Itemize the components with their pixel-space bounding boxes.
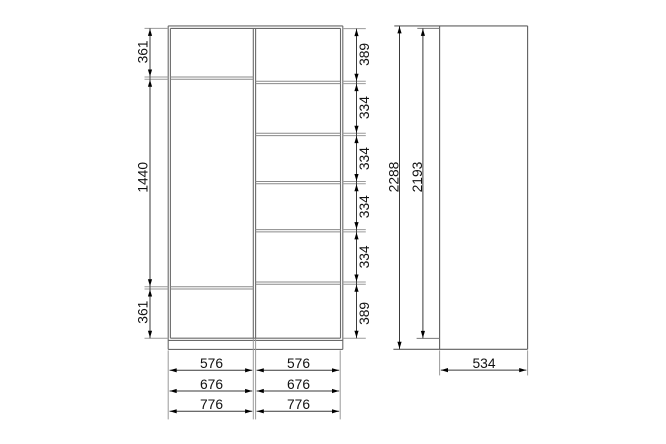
svg-text:389: 389	[357, 43, 372, 66]
svg-text:576: 576	[287, 356, 310, 371]
svg-text:334: 334	[357, 147, 372, 170]
svg-text:676: 676	[287, 377, 310, 392]
svg-text:1440: 1440	[136, 162, 151, 193]
svg-text:389: 389	[357, 302, 372, 325]
svg-text:334: 334	[357, 245, 372, 268]
svg-text:334: 334	[357, 195, 372, 218]
svg-text:776: 776	[200, 397, 223, 412]
svg-text:2288: 2288	[387, 161, 402, 192]
svg-text:334: 334	[357, 96, 372, 119]
svg-text:361: 361	[136, 40, 151, 63]
svg-text:576: 576	[200, 356, 223, 371]
svg-text:2193: 2193	[410, 161, 425, 192]
svg-text:776: 776	[287, 397, 310, 412]
svg-text:361: 361	[136, 301, 151, 324]
svg-text:534: 534	[472, 356, 495, 371]
svg-text:676: 676	[200, 377, 223, 392]
